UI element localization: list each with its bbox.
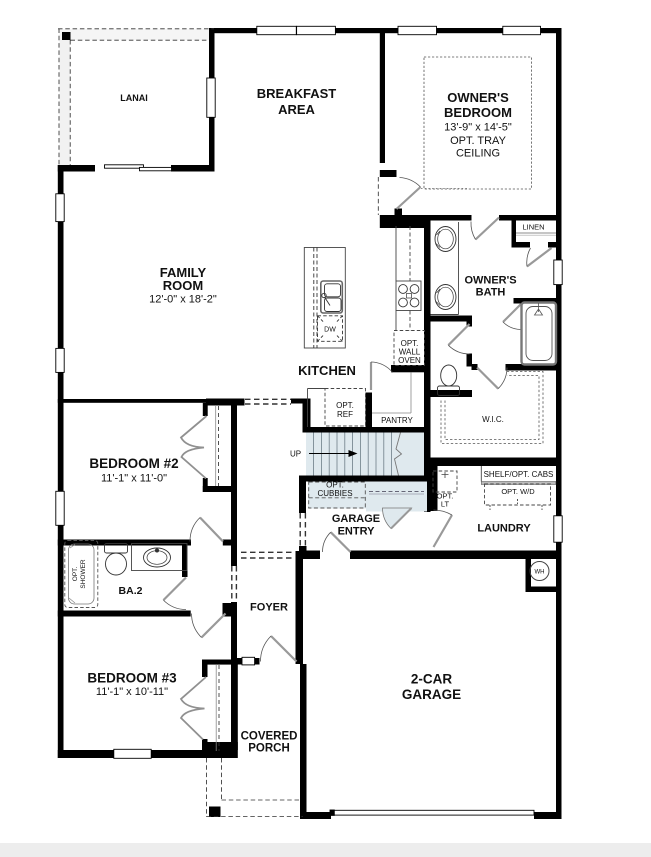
svg-text:ENTRY: ENTRY [338,526,376,538]
svg-text:12'-0" x 18'-2": 12'-0" x 18'-2" [149,294,217,306]
svg-text:BREAKFAST: BREAKFAST [257,86,337,101]
svg-text:KITCHEN: KITCHEN [298,363,356,378]
svg-text:FOYER: FOYER [250,602,288,614]
svg-text:UP: UP [290,450,301,459]
svg-text:GARAGE: GARAGE [402,687,461,702]
svg-text:13'-9" x 14'-5": 13'-9" x 14'-5" [444,122,512,134]
svg-text:BEDROOM #3: BEDROOM #3 [87,671,177,686]
svg-text:BEDROOM: BEDROOM [444,105,512,120]
svg-text:OWNER'S: OWNER'S [447,90,509,105]
svg-text:OVEN: OVEN [398,356,421,365]
svg-text:REF: REF [337,410,353,419]
svg-text:LANAI: LANAI [120,93,148,103]
svg-text:DW: DW [324,327,336,334]
svg-text:WH: WH [535,570,545,576]
svg-text:BA.2: BA.2 [119,585,143,597]
svg-text:CEILING: CEILING [456,148,500,160]
svg-text:LAUNDRY: LAUNDRY [477,522,531,534]
svg-text:11'-1" x 10'-11": 11'-1" x 10'-11" [96,686,168,698]
svg-text:ROOM: ROOM [163,278,203,293]
svg-text:LINEN: LINEN [522,223,544,232]
svg-text:W.I.C.: W.I.C. [482,415,504,424]
svg-text:SHOWER: SHOWER [80,559,87,589]
svg-text:OPT.: OPT. [336,401,354,410]
svg-text:2-CAR: 2-CAR [411,672,453,687]
svg-text:BEDROOM #2: BEDROOM #2 [89,456,178,471]
svg-text:OPT. W/D: OPT. W/D [501,487,535,496]
svg-text:OWNER'S: OWNER'S [464,275,516,287]
svg-text:11'-1" x 11'-0": 11'-1" x 11'-0" [101,473,167,485]
svg-text:PANTRY: PANTRY [381,416,413,425]
svg-text:LT: LT [441,500,450,509]
svg-text:GARAGE: GARAGE [332,513,380,525]
svg-text:COVERED: COVERED [241,731,298,743]
svg-text:CUBBIES: CUBBIES [317,489,352,498]
svg-text:AREA: AREA [278,102,315,117]
svg-text:OPT.: OPT. [72,567,79,582]
svg-text:BATH: BATH [476,287,506,299]
svg-text:OPT. TRAY: OPT. TRAY [450,135,506,147]
svg-text:PORCH: PORCH [248,743,290,755]
svg-text:SHELF/OPT. CABS: SHELF/OPT. CABS [484,470,554,479]
